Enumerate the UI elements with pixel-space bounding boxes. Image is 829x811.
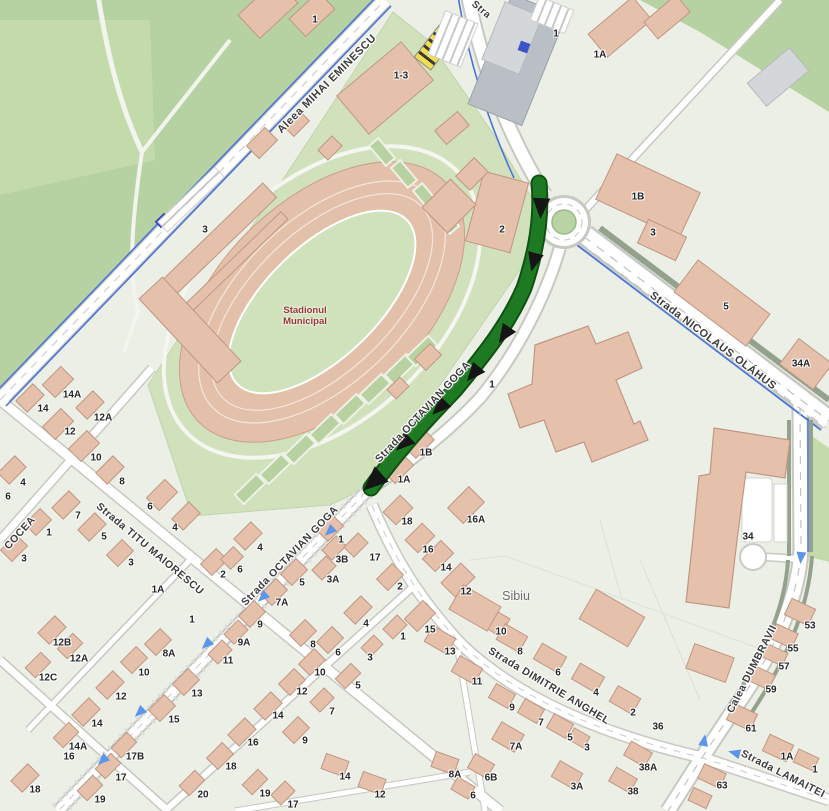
map-canvas[interactable]: Stadionul Municipal Sibiu Aleea MIHAI EM…: [0, 0, 829, 811]
map-graphics: [0, 0, 829, 811]
